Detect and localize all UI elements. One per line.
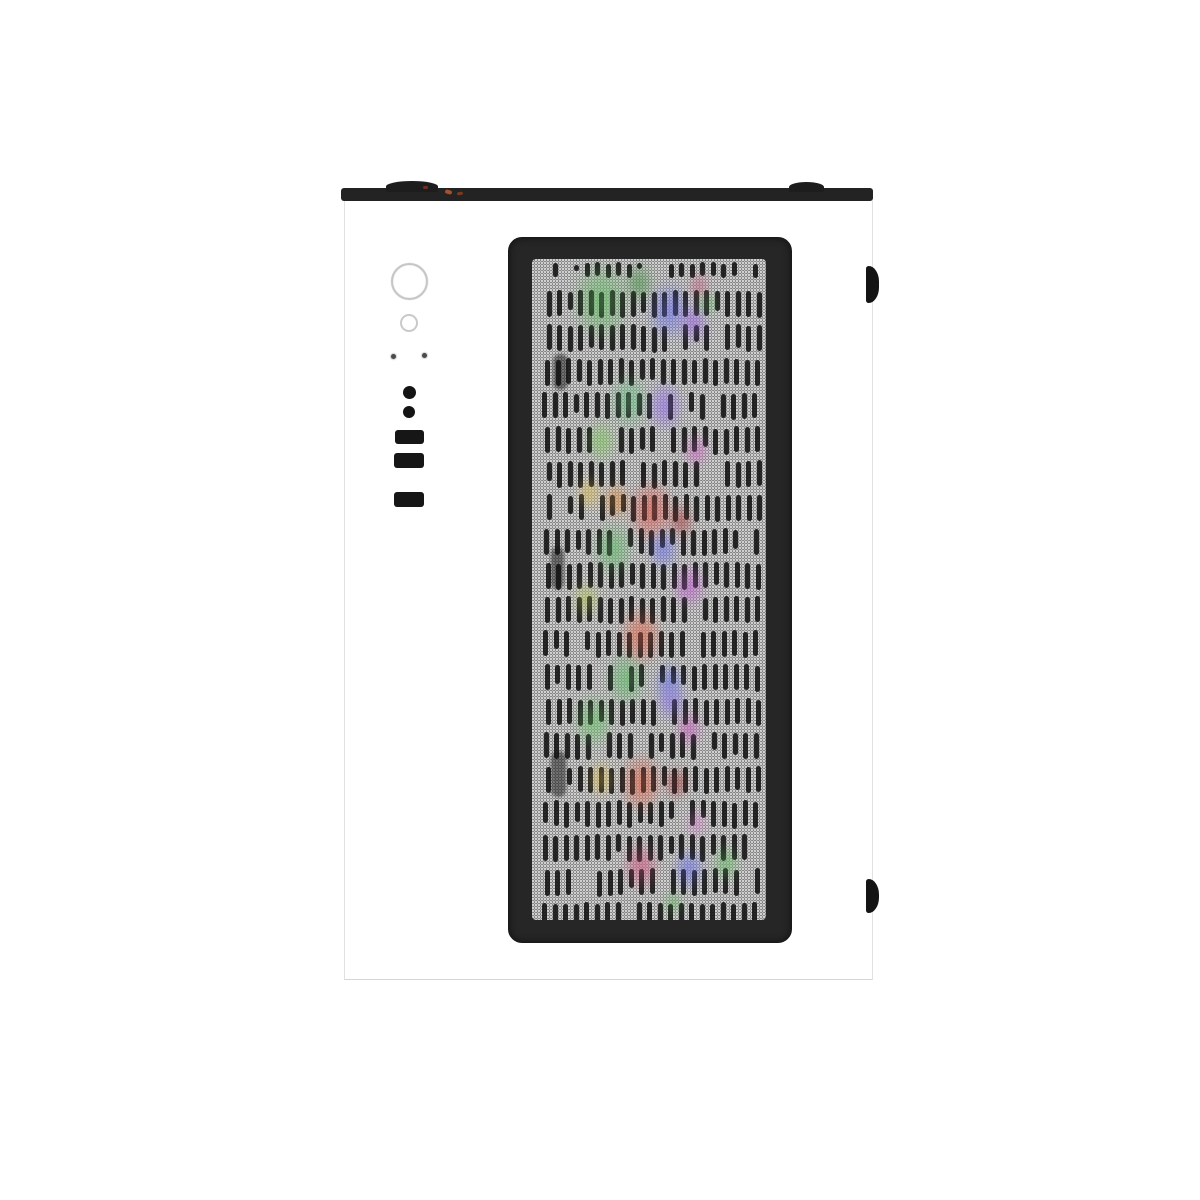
- led-indicator-left: [391, 354, 396, 359]
- rgb-glow: [675, 709, 704, 749]
- rgb-glow: [685, 808, 707, 839]
- product-photo-canvas: [0, 0, 1200, 1200]
- side-latch-tab-bottom: [866, 879, 879, 913]
- rgb-glow: [671, 562, 706, 610]
- rgb-glow: [587, 759, 616, 799]
- usb-port-1: [395, 430, 424, 444]
- rgb-glow: [619, 752, 664, 814]
- rgb-glow: [572, 692, 614, 749]
- rgb-glow: [602, 481, 631, 521]
- rgb-glow: [673, 847, 705, 891]
- usb-port-2: [394, 453, 424, 468]
- cable-accent-small: [423, 186, 428, 189]
- rgb-glow: [663, 765, 689, 800]
- rgb-glow: [712, 843, 741, 883]
- rgb-glow: [571, 259, 632, 343]
- top-latch-right: [789, 182, 824, 192]
- rgb-glow: [647, 527, 679, 571]
- rgb-glow: [576, 475, 602, 510]
- rgb-glow-layer-over: [532, 259, 766, 920]
- rgb-glow: [608, 372, 650, 429]
- rgb-glow: [683, 433, 709, 468]
- side-latch-tab-top: [866, 266, 879, 303]
- rgb-glow: [592, 520, 634, 577]
- usb-port-3: [394, 492, 424, 507]
- audio-jack-mic: [403, 386, 416, 399]
- audio-jack-headphone: [403, 406, 415, 418]
- rgb-glow: [663, 890, 682, 916]
- rgb-glow: [585, 419, 617, 463]
- mesh-front-panel: [508, 237, 792, 943]
- reset-button: [400, 314, 418, 332]
- top-latch-left: [386, 181, 438, 192]
- power-button: [391, 263, 428, 300]
- led-indicator-right: [422, 353, 427, 358]
- mesh-filter-area: [532, 259, 766, 920]
- rgb-glow: [605, 650, 647, 707]
- rgb-glow: [572, 579, 601, 619]
- rgb-glow: [646, 380, 684, 433]
- rgb-glow: [622, 840, 660, 893]
